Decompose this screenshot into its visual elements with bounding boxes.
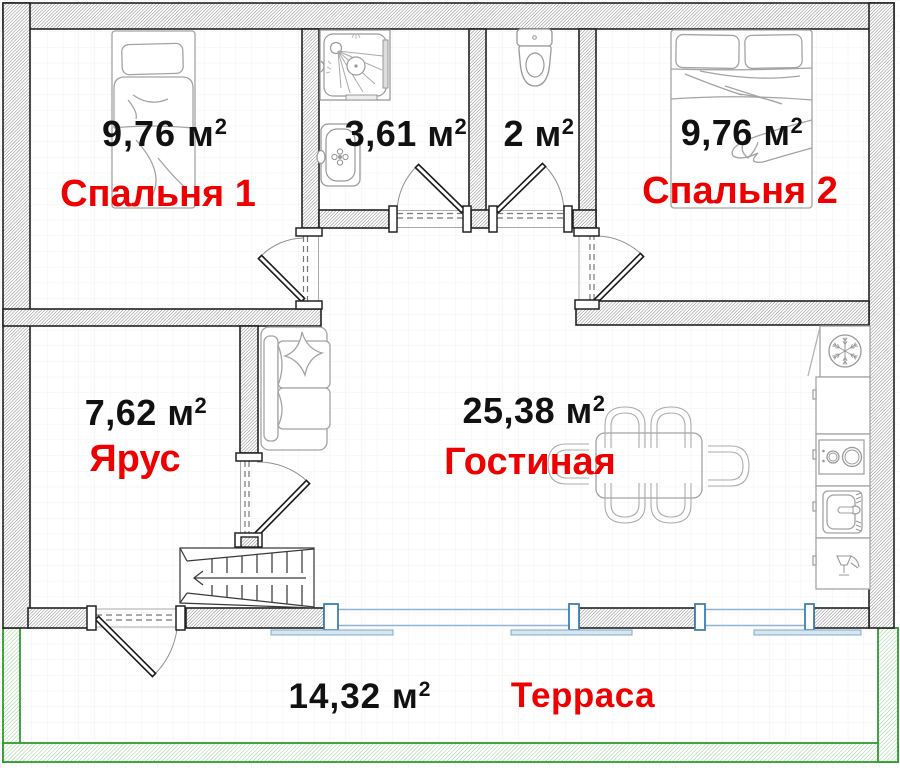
svg-text:3,61 м2: 3,61 м2 — [345, 113, 467, 154]
svg-text:Ярус: Ярус — [89, 438, 180, 480]
svg-text:25,38 м2: 25,38 м2 — [463, 390, 606, 431]
svg-text:Терраса: Терраса — [511, 676, 655, 715]
svg-text:Спальня 2: Спальня 2 — [642, 170, 838, 212]
svg-text:14,32 м2: 14,32 м2 — [289, 677, 432, 716]
svg-text:9,76 м2: 9,76 м2 — [681, 112, 803, 153]
svg-text:9,76 м2: 9,76 м2 — [102, 113, 228, 154]
svg-text:Спальня 1: Спальня 1 — [60, 173, 256, 215]
svg-text:Гостиная: Гостиная — [444, 441, 616, 483]
svg-text:7,62 м2: 7,62 м2 — [85, 392, 207, 433]
